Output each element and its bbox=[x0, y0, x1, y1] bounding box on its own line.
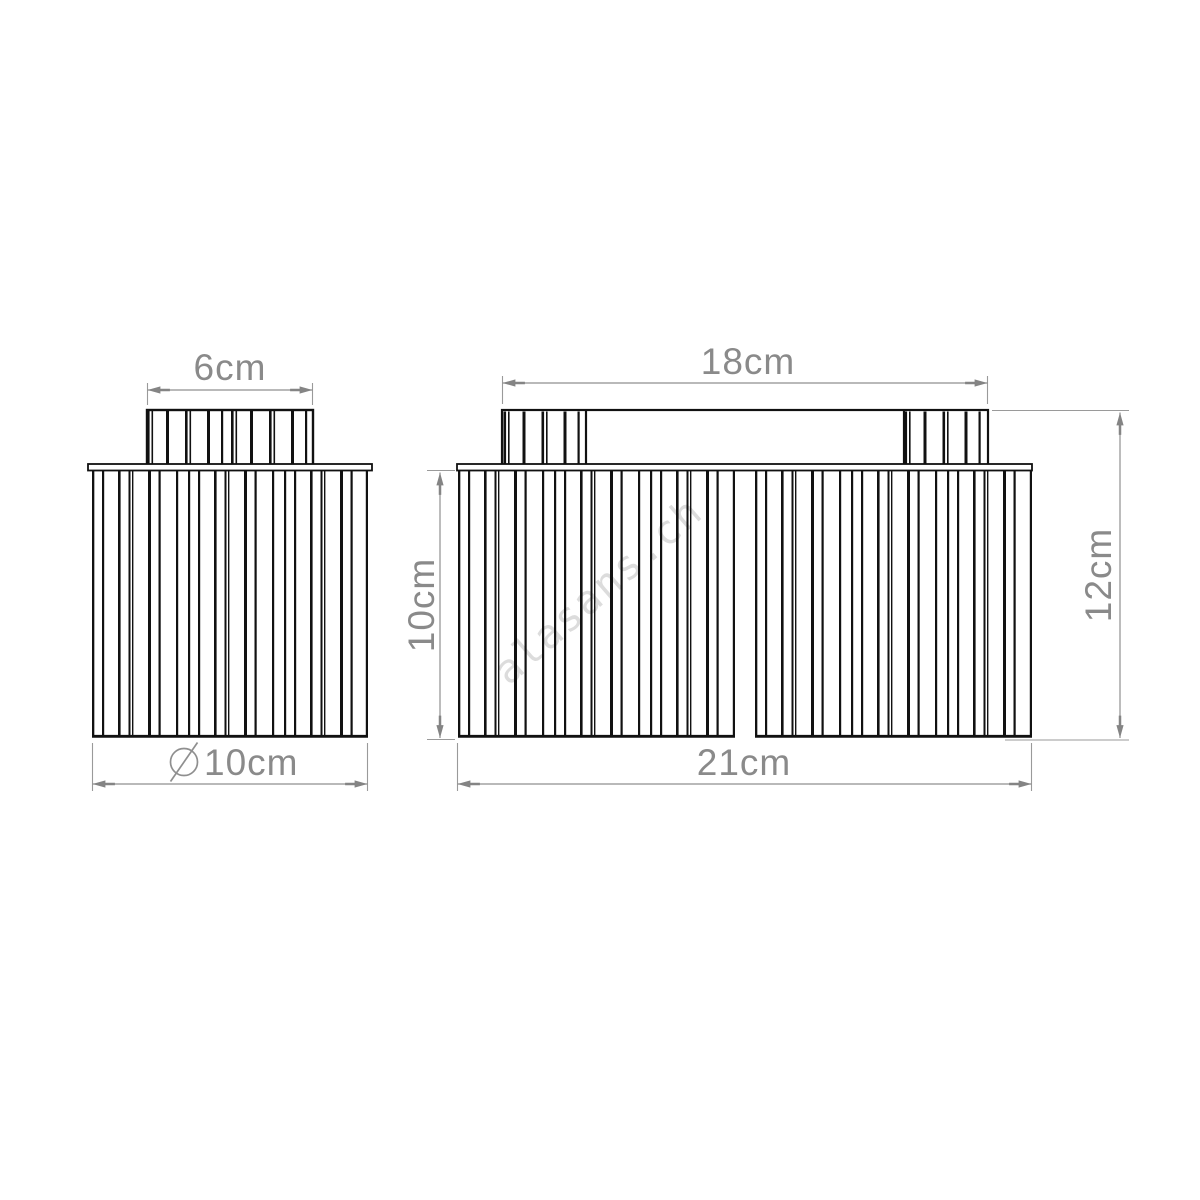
mounting-bar-ribs-right bbox=[905, 412, 988, 464]
dim-6cm-label: 6cm bbox=[194, 347, 267, 388]
double-shade-ceiling-plate bbox=[457, 464, 1032, 471]
single-shade-cap bbox=[147, 410, 313, 465]
double-shade-view: 18cm 10cm 12cm 21cm bbox=[401, 341, 1129, 791]
dim-21cm-label: 21cm bbox=[697, 742, 791, 783]
mounting-bar bbox=[502, 410, 988, 465]
single-shade-body bbox=[92, 471, 368, 738]
single-shade-ceiling-plate bbox=[88, 464, 372, 471]
dimension-cap-width: 6cm bbox=[148, 347, 313, 405]
single-shade-view: 6cm 10cm bbox=[88, 347, 372, 791]
double-shade-body-right bbox=[755, 471, 1032, 738]
dimension-shade-diameter: 10cm bbox=[93, 742, 368, 791]
technical-drawing-canvas: alasans.ch 6cm bbox=[0, 0, 1200, 1200]
diameter-icon bbox=[171, 743, 198, 782]
dimension-bar-width: 18cm bbox=[503, 341, 988, 404]
ceiling-light-dimension-diagram: alasans.ch 6cm bbox=[0, 0, 1200, 1200]
dimension-shade-height: 10cm bbox=[401, 471, 455, 740]
dim-12cm-label: 12cm bbox=[1078, 528, 1119, 622]
dim-10cm-label: 10cm bbox=[401, 558, 442, 652]
dim-diameter-label: 10cm bbox=[204, 742, 298, 783]
mounting-bar-ribs-left bbox=[504, 412, 586, 464]
dim-18cm-label: 18cm bbox=[701, 341, 795, 382]
dimension-total-width: 21cm bbox=[458, 742, 1032, 791]
double-shade-body-left bbox=[458, 471, 735, 738]
